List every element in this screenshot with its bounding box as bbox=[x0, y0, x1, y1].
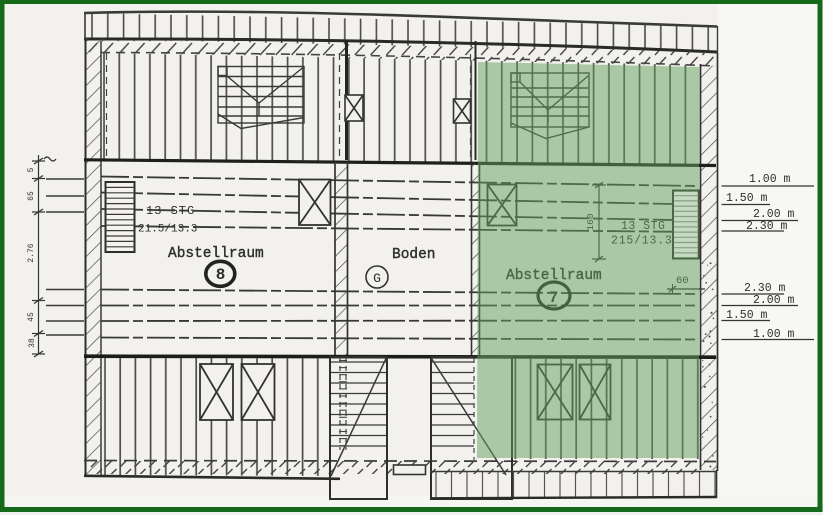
svg-text:1.50 m: 1.50 m bbox=[726, 192, 768, 205]
svg-text:8: 8 bbox=[216, 266, 226, 284]
svg-text:38: 38 bbox=[28, 338, 37, 348]
svg-text:5: 5 bbox=[27, 167, 36, 172]
svg-text:13 STG: 13 STG bbox=[146, 204, 195, 218]
svg-text:Boden: Boden bbox=[392, 247, 436, 263]
svg-text:Abstellraum: Abstellraum bbox=[168, 246, 264, 262]
svg-text:65: 65 bbox=[27, 191, 36, 201]
svg-text:45: 45 bbox=[27, 312, 36, 322]
svg-text:1.00 m: 1.00 m bbox=[749, 173, 791, 186]
svg-text:21.5/13.3: 21.5/13.3 bbox=[138, 224, 197, 236]
svg-text:G: G bbox=[373, 271, 381, 286]
svg-text:2.76: 2.76 bbox=[27, 243, 36, 262]
